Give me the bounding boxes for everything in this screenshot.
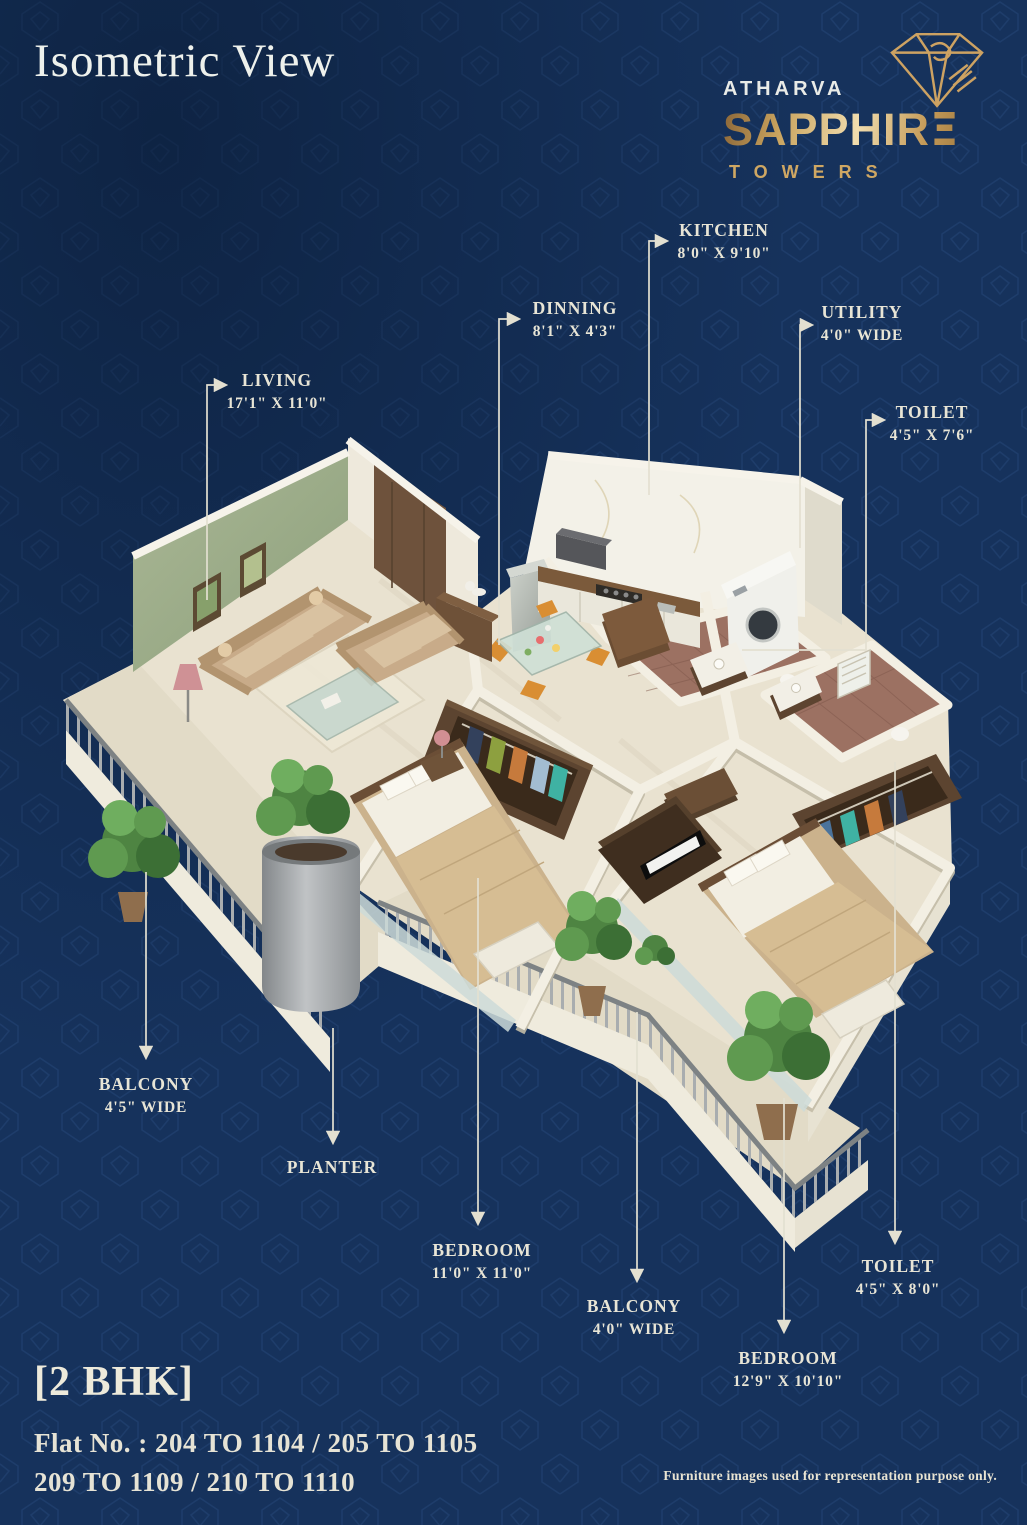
flat-numbers: Flat No. : 204 TO 1104 / 205 TO 1105 209… [34, 1424, 478, 1502]
room-name: BALCONY [99, 1072, 194, 1097]
room-dims: 4'0" WIDE [587, 1319, 682, 1341]
label-planter: PLANTER [287, 1155, 378, 1180]
room-dims: 4'0" WIDE [821, 325, 903, 347]
room-name: TOILET [890, 400, 975, 425]
label-kitchen: KITCHEN 8'0" X 9'10" [677, 218, 770, 264]
room-name: KITCHEN [677, 218, 770, 243]
brand-logo: ATHARVA SAPPHIRΞ TOWERS [723, 26, 991, 183]
label-toilet-bottom: TOILET 4'5" X 8'0" [856, 1254, 941, 1300]
label-toilet-top: TOILET 4'5" X 7'6" [890, 400, 975, 446]
disclaimer-note: Furniture images used for representation… [663, 1468, 997, 1484]
room-name: BEDROOM [432, 1238, 532, 1263]
room-dims: 8'1" X 4'3" [533, 321, 618, 343]
room-name: DINNING [533, 296, 618, 321]
room-dims: 4'5" X 8'0" [856, 1279, 941, 1301]
brand-towers: TOWERS [723, 162, 991, 183]
label-living: LIVING 17'1" X 11'0" [227, 368, 328, 414]
room-dims: 4'5" X 7'6" [890, 425, 975, 447]
page-title: Isometric View [34, 34, 335, 88]
room-dims: 11'0" X 11'0" [432, 1263, 532, 1285]
room-dims: 4'5" WIDE [99, 1097, 194, 1119]
room-dims: 8'0" X 9'10" [677, 243, 770, 265]
room-name: PLANTER [287, 1155, 378, 1180]
label-utility: UTILITY 4'0" WIDE [821, 300, 903, 346]
poster-page: Isometric View ATHARVA SAPPHIRΞ TOWERS L… [0, 0, 1027, 1525]
label-bedroom-right: BEDROOM 12'9" X 10'10" [733, 1346, 843, 1392]
room-name: LIVING [227, 368, 328, 393]
room-dims: 17'1" X 11'0" [227, 393, 328, 415]
room-name: UTILITY [821, 300, 903, 325]
label-bedroom-left: BEDROOM 11'0" X 11'0" [432, 1238, 532, 1284]
label-balcony-mid: BALCONY 4'0" WIDE [587, 1294, 682, 1340]
unit-type: [2 BHK] [34, 1358, 194, 1406]
flat-numbers-line1: Flat No. : 204 TO 1104 / 205 TO 1105 [34, 1424, 478, 1463]
room-dims: 12'9" X 10'10" [733, 1371, 843, 1393]
label-dinning: DINNING 8'1" X 4'3" [533, 296, 618, 342]
planter-box [262, 836, 360, 1012]
room-name: BEDROOM [733, 1346, 843, 1371]
flat-numbers-line2: 209 TO 1109 / 210 TO 1110 [34, 1463, 478, 1502]
room-name: TOILET [856, 1254, 941, 1279]
diamond-icon [885, 26, 989, 112]
label-balcony-left: BALCONY 4'5" WIDE [99, 1072, 194, 1118]
room-name: BALCONY [587, 1294, 682, 1319]
